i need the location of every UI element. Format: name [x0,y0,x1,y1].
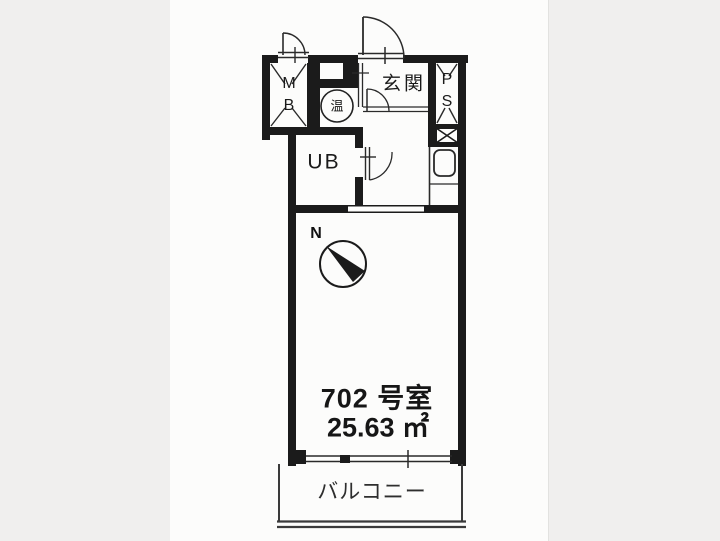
floor-area-label: 25.63 ㎡ [327,415,429,442]
duct-box [436,128,458,143]
balcony-label: バルコニー [317,482,427,503]
compass-icon [320,241,366,287]
entrance-label: 玄関 [382,75,426,94]
mb-door [278,33,309,63]
wall-notch-opening [320,63,343,79]
compass-needle [326,246,365,282]
unit-bath-label: UB [307,152,340,173]
unit-number-label: 702 号室 [321,386,434,413]
genkan-step [363,107,428,112]
ub-door [360,147,392,180]
wall-right [458,55,466,466]
kitchen-counter [429,147,458,205]
wall-heater-left [307,88,320,127]
sliding-door-slot [348,207,424,212]
wall-ub-right-bottom [355,177,363,206]
wall-top-mid [308,55,358,63]
pipe-space-label-p: P [442,72,453,88]
wall-bottom-right [450,450,466,464]
entrance-door [358,17,404,64]
pipe-space-label-s: S [442,94,453,110]
window-meeting-stile [340,455,350,463]
wall-ub-right-top [355,135,363,148]
wall-mb-bottom [262,127,363,135]
floorplan-image: 玄関 M B P S 温 UB N 702 号室 25.63 ㎡ バルコニー [0,0,720,541]
floorplan-drawing [0,0,720,541]
wall-genkan-ps [428,63,436,147]
sink [434,150,455,176]
wall-bottom-left [288,450,306,464]
wall-left-main [288,127,296,466]
compass-north-label: N [310,226,322,242]
meter-box-symbol [271,64,306,126]
balcony-window [306,450,452,468]
meter-box-label-m: M [282,76,295,92]
meter-box-label-b: B [284,98,295,114]
water-heater-label: 温 [330,100,343,113]
